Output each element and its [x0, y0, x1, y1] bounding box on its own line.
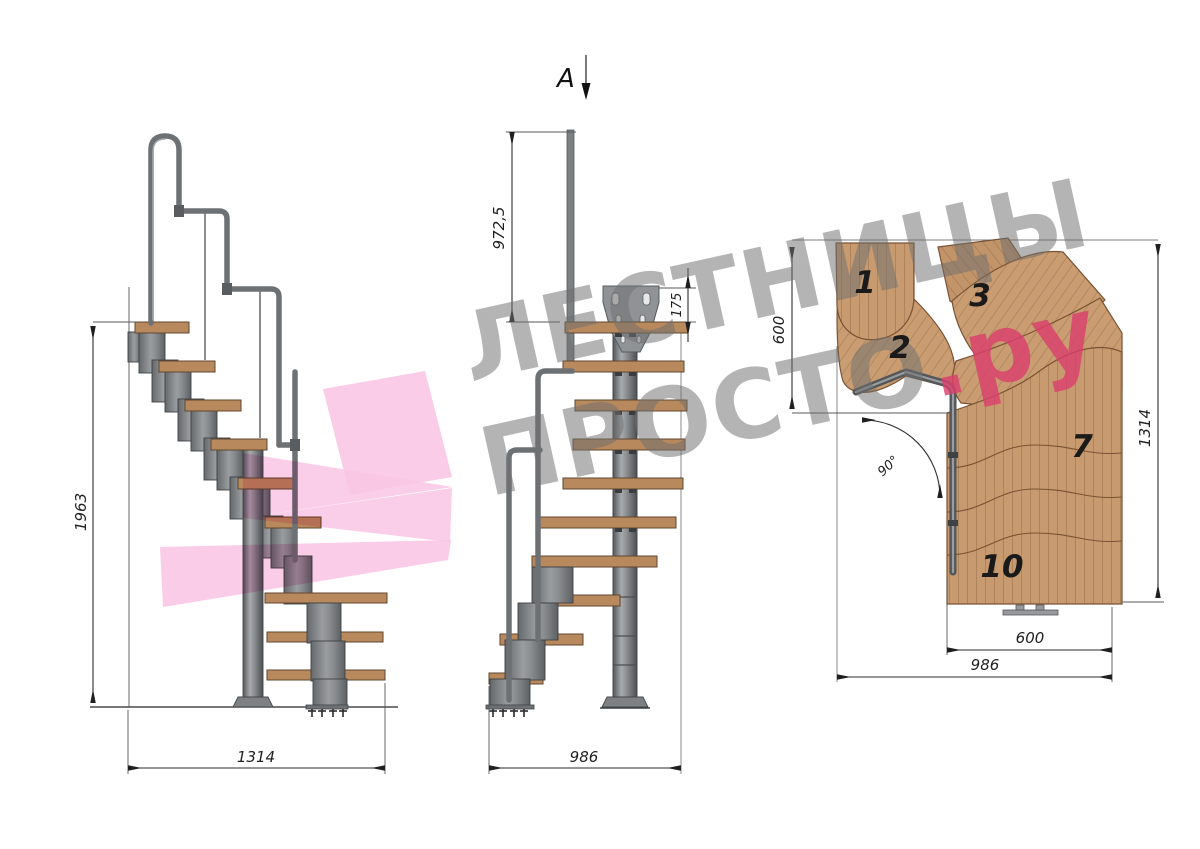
base-plate [486, 705, 534, 709]
rail-tee [174, 205, 184, 217]
dim-label-986-front: 986 [570, 748, 599, 766]
rail-joint [948, 452, 958, 458]
handrail-loop [151, 136, 179, 323]
section-label: A [555, 64, 575, 94]
dim-label-1963: 1963 [72, 493, 90, 531]
dim-label-1314-side: 1314 [237, 748, 275, 766]
dim-label-1314-plan: 1314 [1136, 409, 1154, 447]
treads-side-lower [265, 593, 387, 717]
rail-tee [222, 283, 232, 295]
rail-tee [290, 439, 300, 451]
staircase-drawing-sheet: 1963 1314 A [0, 0, 1200, 849]
step-number-2: 2 [889, 330, 911, 366]
angle-label: 90° [875, 453, 902, 480]
step-number-1: 1 [854, 265, 876, 301]
anchor-bolts [489, 709, 528, 717]
base-plate [306, 705, 348, 709]
dimension-plan-width: 986 [838, 656, 1111, 677]
dimension-side-height: 1963 [72, 322, 137, 702]
plan-bracket [1003, 605, 1058, 615]
section-arrowhead-icon [582, 83, 591, 100]
pole-base [602, 697, 648, 707]
dim-label-986-plan: 986 [971, 656, 1000, 674]
side-pole-base [233, 697, 273, 707]
step-number-3: 3 [969, 278, 991, 314]
dim-label-972-5: 972,5 [490, 207, 508, 250]
section-arrow: A [555, 55, 591, 100]
dim-label-600-bottom: 600 [1016, 629, 1045, 647]
step-number-10: 10 [980, 549, 1023, 585]
dimension-plan-depth: 1314 [1122, 245, 1164, 602]
step-number-7: 7 [1071, 429, 1093, 465]
anchor-bolts [308, 709, 347, 717]
rail-joint [948, 520, 958, 526]
drawing-canvas: 1963 1314 A [0, 0, 1200, 849]
